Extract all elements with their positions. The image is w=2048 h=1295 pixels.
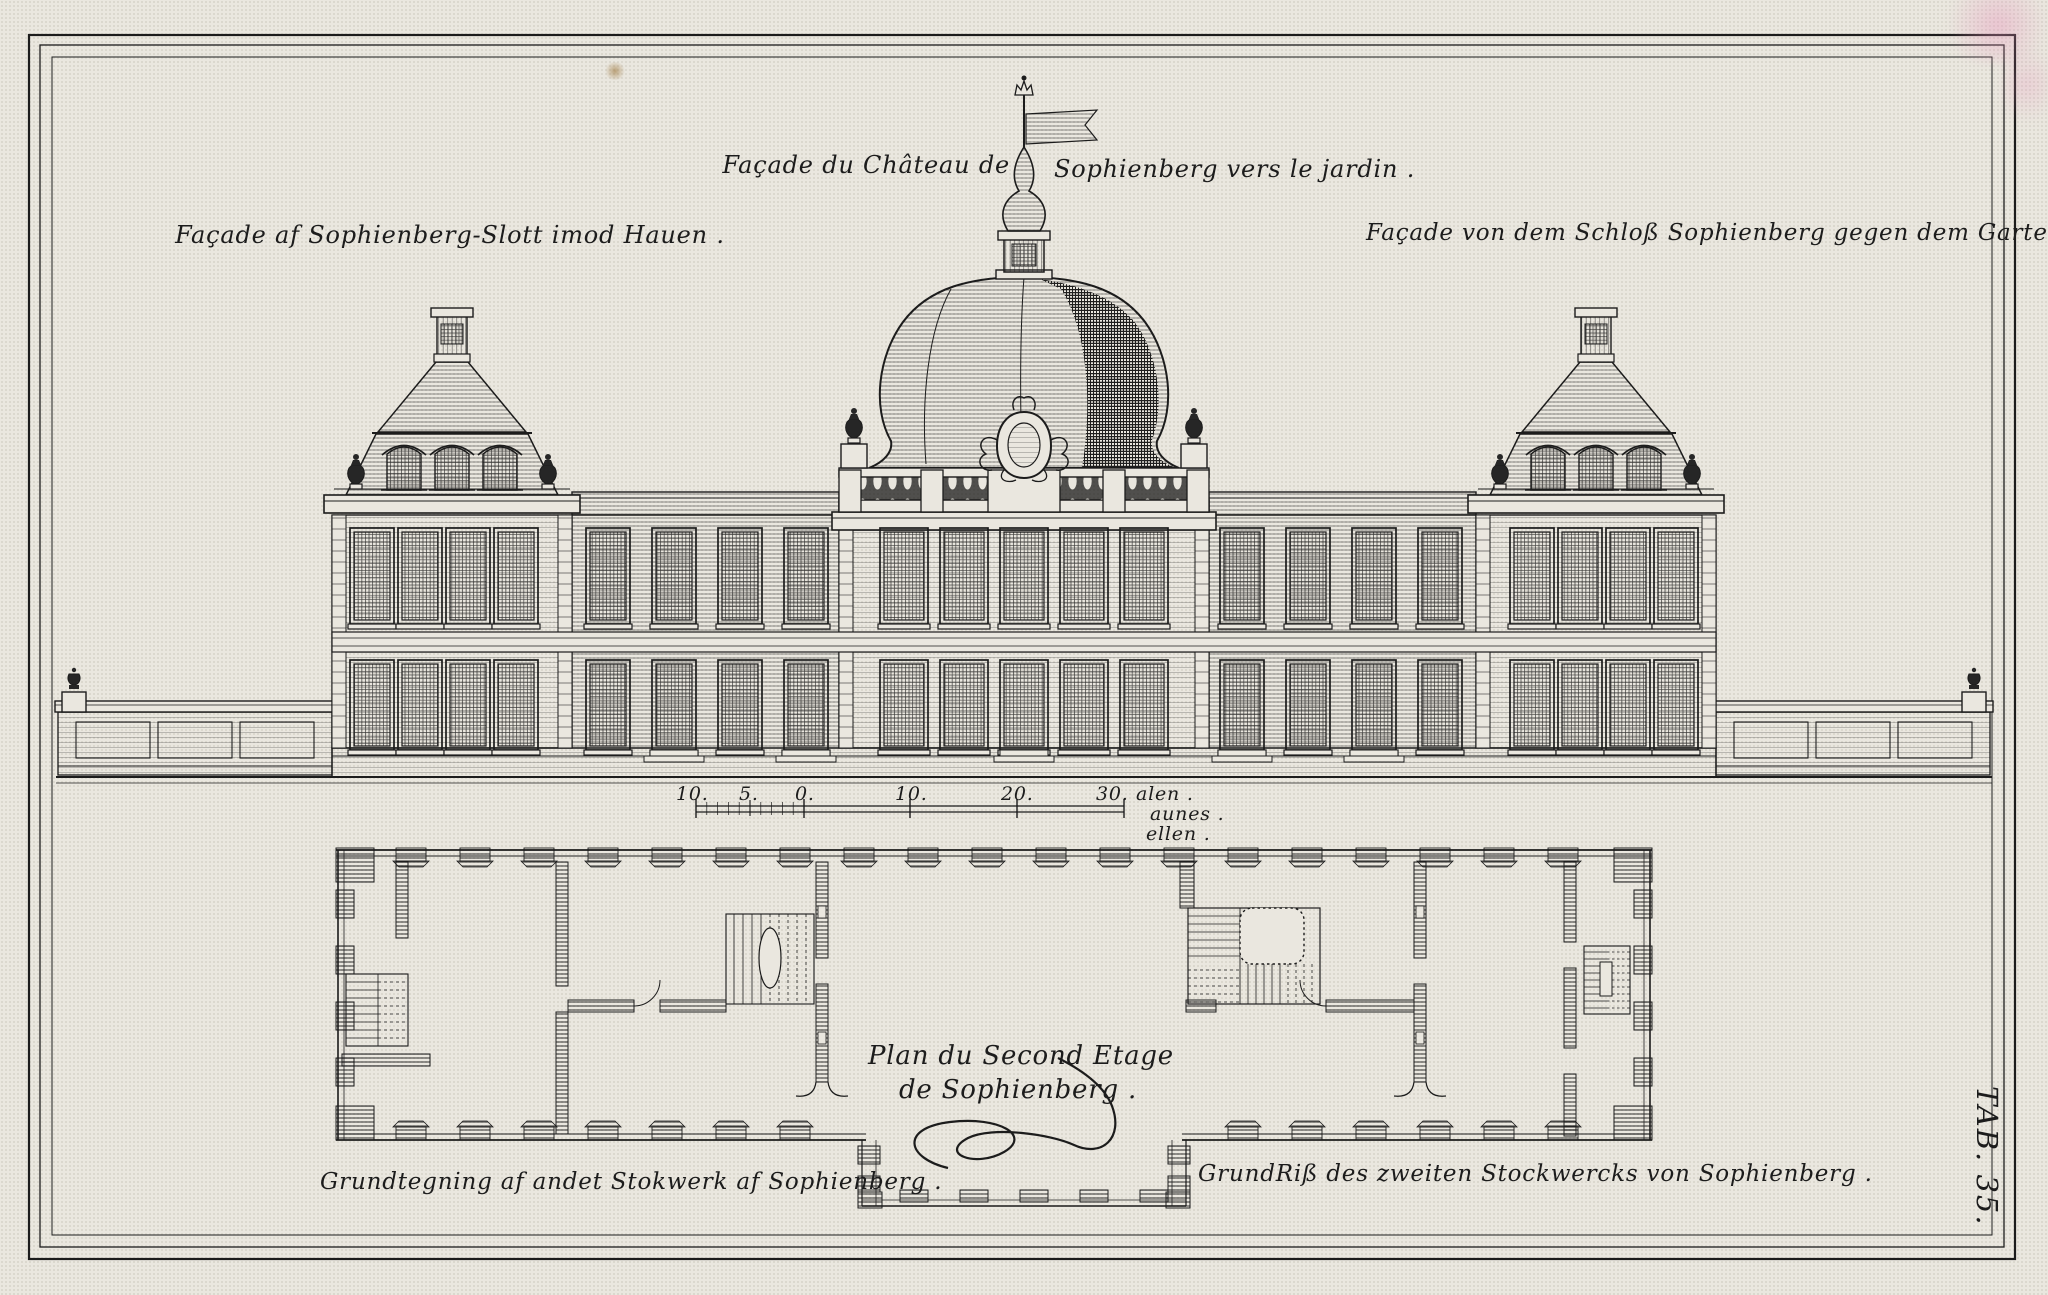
- plate-number-tab: TAB. 35.: [1970, 1086, 2002, 1227]
- plan-title-line1: Plan du Second Etage: [868, 1042, 1168, 1071]
- title-danish: Façade af Sophienberg-Slott imod Hauen .: [150, 222, 750, 248]
- title-german: Façade von dem Schloß Sophienberg gegen …: [1366, 221, 2006, 246]
- scale-unit-ellen: ellen .: [1146, 824, 1211, 845]
- floor-plan-drawing: [336, 848, 1652, 1208]
- scale-unit-aunes: aunes .: [1150, 804, 1224, 825]
- caption-german: GrundRiß des zweiten Stockwercks von Sop…: [1198, 1162, 1818, 1187]
- scale-tick-label: 20.: [1001, 784, 1034, 805]
- scale-unit-alen: alen .: [1136, 784, 1194, 805]
- facade-elevation-drawing: [55, 76, 1993, 784]
- scale-tick-label: 30.: [1096, 784, 1129, 805]
- title-french-part2: Sophienberg vers le jardin .: [1054, 156, 1415, 182]
- scale-tick-label: 5.: [739, 784, 759, 805]
- scale-tick-label: 10.: [895, 784, 928, 805]
- scale-tick-label: 0.: [795, 784, 815, 805]
- engraving-plate-page: { "plate": { "titles": { "danish": "Faça…: [0, 0, 2048, 1295]
- caption-danish: Grundtegning af andet Stokwerk af Sophie…: [320, 1170, 860, 1195]
- scale-tick-label: 10.: [676, 784, 709, 805]
- title-french-part1: Façade du Château de: [660, 152, 1010, 178]
- plan-title-line2: de Sophienberg .: [868, 1076, 1168, 1105]
